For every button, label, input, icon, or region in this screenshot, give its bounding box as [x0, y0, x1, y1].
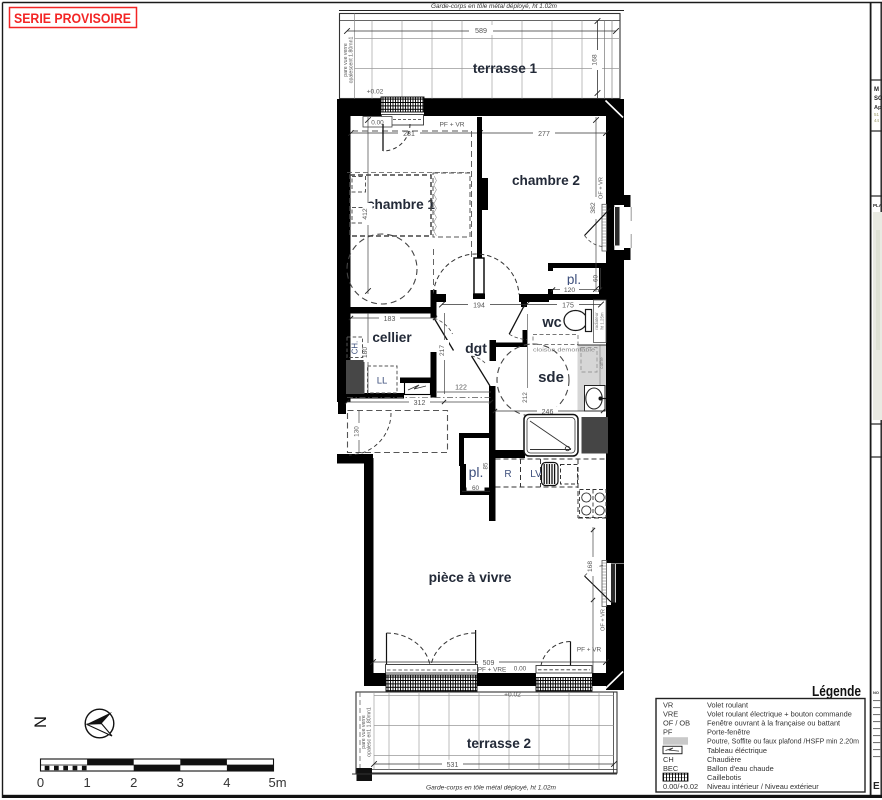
svg-text:terrasse 2: terrasse 2	[467, 736, 532, 751]
svg-text:Poutre, Soffite ou faux plafon: Poutre, Soffite ou faux plafond /HSFP mi…	[707, 737, 859, 746]
svg-text:0.00: 0.00	[371, 120, 384, 127]
svg-text:NO: NO	[873, 690, 879, 695]
svg-text:SERIE PROVISOIRE: SERIE PROVISOIRE	[14, 11, 131, 26]
svg-text:168: 168	[592, 54, 599, 66]
svg-text:183: 183	[384, 316, 396, 323]
svg-text:opalescent 1.80mn1: opalescent 1.80mn1	[349, 37, 355, 84]
svg-text:Garde-corps en tôle métal dépl: Garde-corps en tôle métal déployé, ht 1.…	[431, 3, 557, 10]
svg-text:0: 0	[37, 775, 44, 790]
svg-text:Fenêtre ouvrant à la française: Fenêtre ouvrant à la française ou battan…	[707, 719, 840, 728]
svg-text:pl.: pl.	[469, 464, 484, 480]
svg-text:VR: VR	[663, 701, 673, 710]
svg-text:589: 589	[475, 26, 487, 35]
svg-text:180: 180	[362, 347, 369, 358]
svg-text:VRE: VRE	[663, 710, 678, 719]
svg-text:PF + VR: PF + VR	[439, 122, 464, 129]
svg-text:382: 382	[590, 202, 597, 214]
svg-text:CH.: CH.	[351, 341, 360, 354]
svg-text:chambre 2: chambre 2	[512, 173, 580, 188]
svg-text:277: 277	[538, 131, 550, 138]
svg-text:+0.02: +0.02	[367, 89, 384, 96]
svg-text:Ap: Ap	[874, 105, 882, 111]
svg-text:dgt: dgt	[465, 340, 487, 356]
svg-text:opalesc en1 1.80mn1: opalesc en1 1.80mn1	[367, 707, 373, 757]
svg-text:PF: PF	[663, 728, 673, 737]
svg-text:Niveau intérieur / Niveau exté: Niveau intérieur / Niveau extérieur	[707, 782, 819, 791]
svg-text:Porte-fenêtre: Porte-fenêtre	[707, 728, 750, 737]
svg-text:PLA: PLA	[873, 203, 882, 208]
svg-text:+0.02: +0.02	[504, 692, 521, 699]
svg-text:cloison demontable: cloison demontable	[533, 348, 595, 354]
svg-text:LV: LV	[530, 469, 542, 480]
svg-text:44: 44	[874, 118, 880, 123]
svg-text:BEC: BEC	[663, 764, 679, 773]
svg-text:212: 212	[522, 392, 529, 403]
svg-text:4: 4	[223, 775, 230, 790]
svg-text:terrasse 1: terrasse 1	[473, 61, 538, 76]
svg-text:120: 120	[564, 287, 576, 294]
svg-text:217: 217	[439, 345, 446, 356]
svg-text:ht 1.25m: ht 1.25m	[600, 312, 605, 329]
svg-text:PF + VR: PF + VR	[577, 647, 602, 654]
svg-text:M: M	[874, 87, 879, 93]
svg-text:3: 3	[177, 775, 184, 790]
svg-text:N: N	[32, 716, 50, 728]
svg-text:194: 194	[473, 303, 485, 310]
svg-text:60: 60	[472, 485, 480, 492]
svg-text:coffre: coffre	[599, 357, 604, 369]
svg-text:412: 412	[362, 208, 369, 220]
svg-text:R: R	[504, 469, 511, 480]
svg-text:122: 122	[455, 385, 467, 392]
svg-text:312: 312	[414, 400, 426, 407]
svg-text:Chaudière: Chaudière	[707, 755, 741, 764]
svg-text:5m: 5m	[268, 775, 286, 790]
svg-text:cellier: cellier	[372, 330, 412, 345]
svg-text:0.00: 0.00	[514, 666, 527, 673]
svg-text:51: 51	[874, 112, 880, 117]
svg-text:130: 130	[354, 426, 361, 437]
svg-text:175: 175	[562, 303, 574, 310]
svg-text:CH: CH	[663, 755, 674, 764]
svg-text:531: 531	[447, 762, 459, 769]
svg-text:pl.: pl.	[567, 272, 581, 287]
svg-text:radiateur: radiateur	[594, 312, 599, 330]
svg-text:1: 1	[83, 775, 90, 790]
svg-text:OF / OB: OF / OB	[663, 719, 690, 728]
svg-text:PF + VRE: PF + VRE	[478, 666, 507, 673]
svg-text:Volet roulant électrique + bou: Volet roulant électrique + bouton comman…	[707, 710, 852, 719]
svg-text:LL: LL	[377, 376, 388, 387]
svg-text:85: 85	[483, 462, 490, 469]
svg-text:pièce à vivre: pièce à vivre	[429, 570, 512, 585]
svg-text:168: 168	[587, 561, 594, 572]
svg-text:60: 60	[593, 275, 600, 282]
svg-text:Légende: Légende	[812, 683, 861, 700]
svg-text:chambre 1: chambre 1	[367, 197, 435, 212]
svg-text:wc: wc	[541, 315, 561, 331]
svg-text:Garde-corps en tôle métal dépl: Garde-corps en tôle métal déployé, ht 1.…	[426, 785, 556, 792]
svg-text:OF + VR: OF + VR	[599, 177, 605, 199]
svg-text:Volet roulant: Volet roulant	[707, 701, 748, 710]
svg-text:2: 2	[130, 775, 137, 790]
svg-text:Ballon d'eau chaude: Ballon d'eau chaude	[707, 764, 774, 773]
svg-text:Caillebotis: Caillebotis	[707, 773, 741, 782]
svg-text:0.00/+0.02: 0.00/+0.02	[663, 782, 698, 791]
svg-text:sde: sde	[538, 369, 564, 386]
svg-text:Tableau éléctrique: Tableau éléctrique	[707, 746, 767, 755]
svg-text:SO: SO	[874, 96, 882, 102]
svg-text:OF + VR: OF + VR	[601, 609, 607, 631]
svg-text:E: E	[873, 781, 880, 792]
